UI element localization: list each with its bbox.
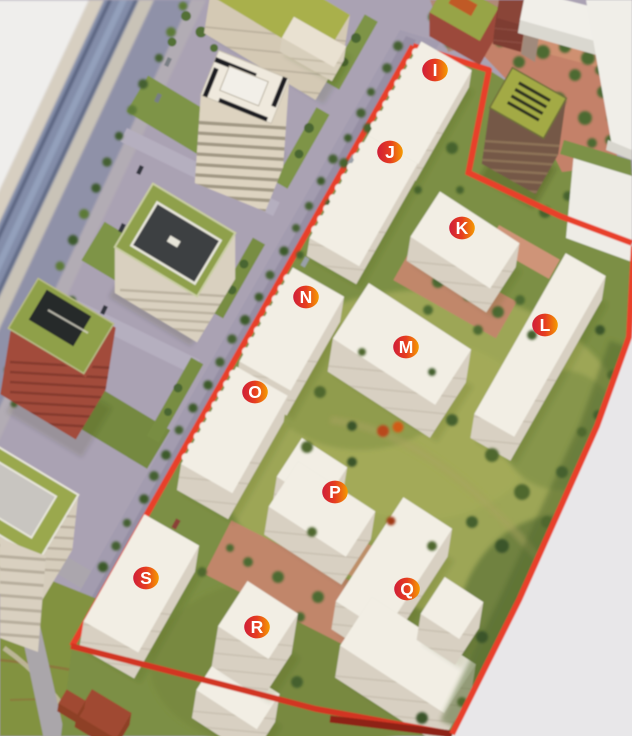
svg-text:S: S [140, 568, 152, 588]
svg-text:J: J [385, 142, 395, 162]
svg-text:I: I [433, 60, 438, 80]
svg-text:M: M [399, 337, 414, 357]
svg-text:N: N [300, 287, 313, 307]
svg-text:L: L [540, 315, 551, 335]
svg-text:K: K [456, 218, 469, 238]
svg-text:O: O [248, 382, 262, 402]
svg-text:P: P [329, 482, 341, 502]
svg-text:Q: Q [400, 579, 414, 599]
svg-text:R: R [251, 617, 264, 637]
